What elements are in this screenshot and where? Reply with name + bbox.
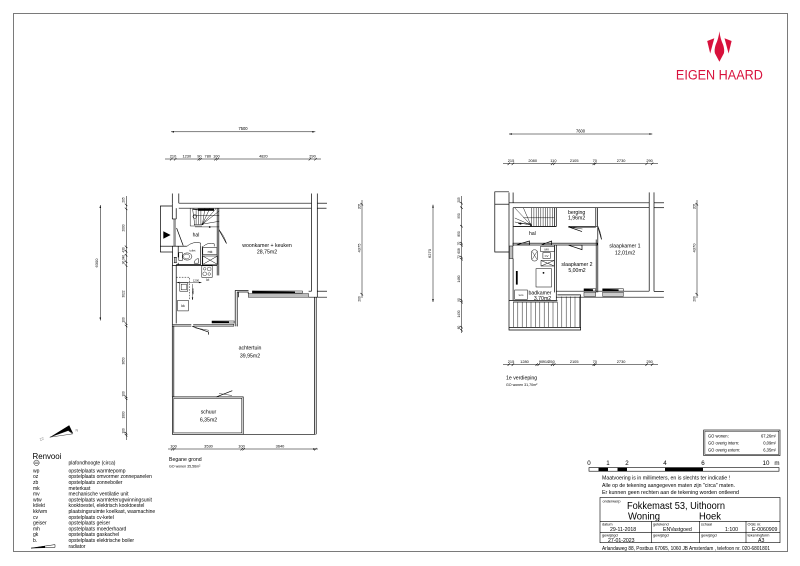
svg-text:290: 290 [646,158,653,163]
svg-text:205: 205 [122,197,126,203]
svg-text:tekeningform: tekeningform [748,533,770,537]
svg-text:GO wonen 31,70m²: GO wonen 31,70m² [506,383,538,387]
svg-text:215: 215 [508,359,515,364]
svg-text:2730: 2730 [617,158,626,163]
svg-text:1e verdieping: 1e verdieping [506,376,537,382]
svg-text:EIGEN HAARD: EIGEN HAARD [676,68,763,84]
svg-text:7600: 7600 [576,128,586,133]
svg-text:1200: 1200 [193,278,200,282]
svg-text:woonkamer + keuken: woonkamer + keuken [242,243,292,249]
svg-text:4820: 4820 [259,154,268,159]
svg-text:7500: 7500 [238,126,248,131]
svg-text:250: 250 [646,359,653,364]
svg-text:3022: 3022 [122,290,126,297]
svg-text:5,00m2: 5,00m2 [568,268,585,274]
svg-text:2730: 2730 [617,359,626,364]
svg-text:OGE nr.: OGE nr. [748,522,762,526]
svg-text:90: 90 [122,261,126,265]
svg-text:hal: hal [529,231,536,237]
svg-text:290: 290 [309,154,316,159]
svg-text:430: 430 [122,247,126,253]
svg-text:Fokkemast 53, Uithoorn: Fokkemast 53, Uithoorn [627,501,725,512]
svg-text:radiator: radiator [69,544,86,550]
svg-text:schuur: schuur [201,410,217,416]
svg-text:1280: 1280 [520,359,529,364]
svg-text:datum: datum [602,522,613,526]
svg-text:3530: 3530 [204,444,213,449]
svg-text:850: 850 [457,231,461,237]
svg-text:m: m [774,460,779,467]
svg-text:0: 0 [587,460,591,467]
svg-text:4375: 4375 [356,243,361,253]
svg-text:Maatvoering is in millimeters,: Maatvoering is in millimeters, en is sle… [602,476,730,482]
svg-text:2000: 2000 [122,224,126,231]
svg-text:3650: 3650 [122,357,126,364]
svg-text:gewijzigd: gewijzigd [701,533,717,537]
svg-text:Er kunnen geen rechten aan de: Er kunnen geen rechten aan de tekening w… [602,490,739,496]
svg-text:MV: MV [545,248,550,252]
svg-text:2: 2 [625,460,629,467]
svg-text:29-11-2018: 29-11-2018 [610,527,636,533]
svg-text:215: 215 [508,158,515,163]
svg-text:4: 4 [663,460,667,467]
svg-text:28,75m2: 28,75m2 [257,250,277,256]
svg-text:205: 205 [357,204,361,210]
svg-text:Woning: Woning [628,512,660,523]
svg-text:E-0060909: E-0060909 [752,527,777,533]
svg-text:3,70m2: 3,70m2 [534,296,551,302]
svg-text:1800: 1800 [191,288,195,295]
svg-text:100: 100 [238,444,245,449]
svg-text:kk: kk [181,304,185,308]
svg-text:205: 205 [457,197,461,203]
svg-text:Begane grond: Begane grond [169,457,202,463]
svg-text:608: 608 [457,248,461,254]
svg-text:GO wonen:: GO wonen: [708,434,729,439]
svg-text:6300: 6300 [94,258,99,268]
svg-text:mk: mk [208,250,213,254]
svg-text:gewijzigd: gewijzigd [653,533,669,537]
svg-text:100: 100 [122,428,126,434]
svg-text:100: 100 [213,154,220,159]
svg-text:b.: b. [33,538,37,544]
svg-text:achtertuin: achtertuin [239,346,262,352]
svg-text:1480: 1480 [457,275,461,282]
svg-text:toilet: toilet [190,249,196,253]
svg-text:1: 1 [606,460,610,467]
svg-text:wm: wm [519,293,524,297]
svg-text:200: 200 [357,296,361,302]
svg-text:6,35m2: 6,35m2 [200,417,217,423]
svg-text:GO overig intern:: GO overig intern: [708,441,739,446]
svg-text:70: 70 [457,242,461,246]
svg-text:2080: 2080 [528,158,537,163]
svg-text:6,35m²: 6,35m² [763,448,776,453]
svg-text:200: 200 [692,296,696,302]
svg-text:kt: kt [206,278,209,282]
svg-text:340: 340 [122,255,126,261]
svg-text:GO wonen 35,56m²: GO wonen 35,56m² [169,464,201,468]
svg-text:1,96m2: 1,96m2 [568,216,585,222]
svg-text:Arlandaweg 88, Postbus 67065,: Arlandaweg 88, Postbus 67065, 1060 JB Am… [602,546,770,552]
svg-text:39,95m2: 39,95m2 [240,354,260,360]
svg-text:60: 60 [457,326,461,330]
svg-text:A3: A3 [758,538,764,544]
svg-text:Alle op de tekening aangegeven: Alle op de tekening aangegeven maten zij… [602,483,735,489]
svg-text:780: 780 [205,154,212,159]
svg-text:10: 10 [763,460,770,467]
svg-text:4370: 4370 [691,243,696,253]
svg-text:GO overig extern:: GO overig extern: [708,448,740,453]
svg-text:27-01-2023: 27-01-2023 [608,538,635,544]
svg-text:100: 100 [122,317,126,323]
svg-text:110: 110 [550,158,557,163]
svg-text:210: 210 [170,154,177,159]
svg-text:hal: hal [193,233,200,239]
svg-text:205: 205 [692,204,696,210]
svg-text:6270: 6270 [427,248,432,258]
svg-text:onderwerp: onderwerp [603,500,621,504]
svg-text:schaal: schaal [701,522,712,526]
svg-text:1230: 1230 [182,154,191,159]
svg-text:CV: CV [545,254,549,258]
svg-text:Renvooi: Renvooi [33,452,62,461]
svg-text:2105: 2105 [570,359,579,364]
svg-text:ENVastgoed: ENVastgoed [663,527,692,533]
svg-text:plafondhoogte (circa): plafondhoogte (circa) [69,460,116,466]
svg-text:90: 90 [457,298,461,302]
svg-text:1:100: 1:100 [725,527,738,533]
svg-text:100: 100 [122,391,126,397]
svg-text:2105: 2105 [570,158,579,163]
svg-text:gewijzigd: gewijzigd [602,533,618,537]
svg-text:3640: 3640 [276,444,285,449]
svg-text:100: 100 [170,444,177,449]
svg-text:1800: 1800 [122,411,126,418]
svg-text:0,09m²: 0,09m² [763,441,776,446]
svg-text:N: N [76,429,79,433]
svg-text:Hoek: Hoek [699,512,722,523]
svg-text:slaapkamer 1: slaapkamer 1 [609,244,640,250]
svg-text:slaapkamer 2: slaapkamer 2 [561,262,592,268]
svg-text:12,01m2: 12,01m2 [615,251,635,257]
svg-text:72: 72 [457,255,461,259]
svg-text:950: 950 [457,213,461,219]
svg-text:1430: 1430 [457,310,461,317]
svg-text:250: 250 [548,359,555,364]
svg-text:6: 6 [701,460,705,467]
svg-text:getekend: getekend [653,522,669,526]
svg-text:67,26m²: 67,26m² [761,434,777,439]
